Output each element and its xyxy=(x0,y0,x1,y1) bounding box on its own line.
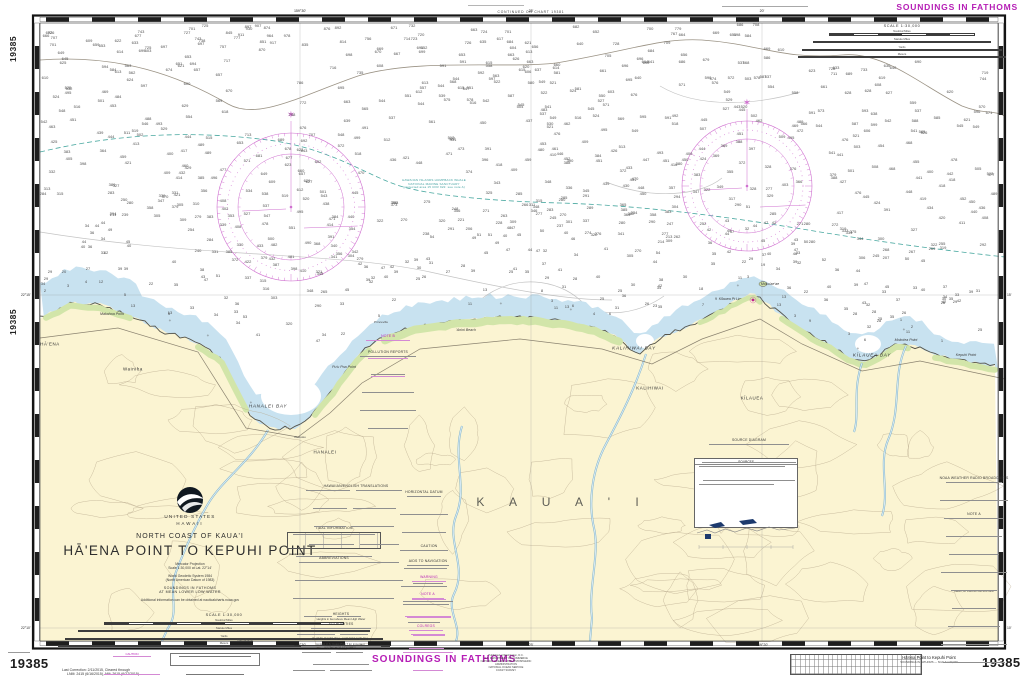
svg-text:692: 692 xyxy=(301,138,308,143)
svg-text:391: 391 xyxy=(884,207,891,212)
svg-text:496: 496 xyxy=(211,175,218,180)
svg-text:35: 35 xyxy=(890,314,895,319)
svg-text:700: 700 xyxy=(647,26,654,31)
svg-text:874: 874 xyxy=(264,25,271,30)
svg-text:44: 44 xyxy=(856,268,861,273)
svg-text:551: 551 xyxy=(405,93,412,98)
svg-text:542: 542 xyxy=(41,119,48,124)
svg-text:47: 47 xyxy=(511,225,516,230)
svg-text:36: 36 xyxy=(90,230,95,235)
svg-text:265: 265 xyxy=(321,289,328,294)
svg-text:291: 291 xyxy=(583,193,590,198)
svg-text:51: 51 xyxy=(477,232,482,237)
svg-text:442: 442 xyxy=(947,171,954,176)
svg-text:275: 275 xyxy=(424,199,431,204)
svg-text:213: 213 xyxy=(666,234,673,239)
svg-text:33: 33 xyxy=(190,305,195,310)
svg-text:403: 403 xyxy=(782,182,789,187)
svg-text:527: 527 xyxy=(244,211,251,216)
svg-text:343: 343 xyxy=(494,180,501,185)
svg-text:368: 368 xyxy=(314,241,321,246)
svg-text:676: 676 xyxy=(300,125,307,130)
svg-text:51: 51 xyxy=(488,232,493,237)
svg-text:271: 271 xyxy=(483,208,490,213)
svg-text:384: 384 xyxy=(595,153,602,158)
svg-text:653: 653 xyxy=(459,52,466,57)
svg-text:320: 320 xyxy=(439,218,446,223)
svg-text:23: 23 xyxy=(653,303,658,308)
svg-text:18: 18 xyxy=(699,286,704,291)
svg-text:292: 292 xyxy=(980,242,987,247)
svg-text:495: 495 xyxy=(601,127,608,132)
svg-text:622: 622 xyxy=(115,38,122,43)
svg-text:34: 34 xyxy=(41,281,46,286)
svg-text:283: 283 xyxy=(108,190,115,195)
svg-text:503: 503 xyxy=(854,144,861,149)
svg-text:639: 639 xyxy=(344,118,351,123)
svg-text:305: 305 xyxy=(154,213,161,218)
svg-text:32: 32 xyxy=(224,295,229,300)
svg-text:250: 250 xyxy=(121,197,128,202)
svg-text:468: 468 xyxy=(906,140,913,145)
svg-text:661: 661 xyxy=(600,68,607,73)
svg-text:37: 37 xyxy=(542,261,547,266)
svg-text:653: 653 xyxy=(185,54,192,59)
svg-text:571: 571 xyxy=(244,158,251,163)
svg-text:544: 544 xyxy=(418,101,425,106)
svg-text:459: 459 xyxy=(120,154,127,159)
svg-text:22: 22 xyxy=(341,331,346,336)
svg-text:651: 651 xyxy=(730,32,737,37)
svg-text:576: 576 xyxy=(712,80,719,85)
svg-text:322: 322 xyxy=(704,187,711,192)
svg-text:28: 28 xyxy=(853,311,858,316)
svg-text:383: 383 xyxy=(694,172,701,177)
svg-text:13: 13 xyxy=(131,303,136,308)
svg-text:36: 36 xyxy=(708,240,713,245)
svg-text:545: 545 xyxy=(588,106,595,111)
svg-text:50: 50 xyxy=(905,256,910,261)
kilauea-point-light xyxy=(752,299,755,302)
svg-text:426: 426 xyxy=(611,148,618,153)
svg-text:484: 484 xyxy=(115,94,122,99)
svg-text:30: 30 xyxy=(417,265,422,270)
svg-text:495: 495 xyxy=(788,135,795,140)
svg-text:420: 420 xyxy=(939,215,946,220)
svg-text:472: 472 xyxy=(797,128,804,133)
svg-text:623: 623 xyxy=(297,147,304,152)
svg-text:478: 478 xyxy=(951,157,958,162)
svg-text:713: 713 xyxy=(245,132,252,137)
svg-text:51: 51 xyxy=(216,273,221,278)
svg-text:303: 303 xyxy=(271,295,278,300)
svg-text:569: 569 xyxy=(618,116,625,121)
svg-text:42: 42 xyxy=(772,220,777,225)
svg-text:521: 521 xyxy=(853,133,860,138)
svg-text:708: 708 xyxy=(289,112,296,117)
svg-text:707: 707 xyxy=(309,132,316,137)
svg-text:315: 315 xyxy=(260,278,267,283)
svg-text:239: 239 xyxy=(122,212,129,217)
svg-text:280: 280 xyxy=(559,197,566,202)
svg-text:389: 389 xyxy=(721,143,728,148)
svg-text:476: 476 xyxy=(554,131,561,136)
svg-text:652: 652 xyxy=(315,159,322,164)
svg-text:669: 669 xyxy=(713,30,720,35)
svg-text:417: 417 xyxy=(837,210,844,215)
svg-text:663: 663 xyxy=(508,52,515,57)
svg-text:537: 537 xyxy=(738,60,745,65)
svg-text:310: 310 xyxy=(193,201,200,206)
svg-text:34: 34 xyxy=(85,223,90,228)
svg-text:657: 657 xyxy=(216,72,223,77)
svg-text:329: 329 xyxy=(767,193,774,198)
svg-text:411: 411 xyxy=(959,220,966,225)
svg-text:44: 44 xyxy=(725,231,730,236)
svg-text:451: 451 xyxy=(737,131,744,136)
svg-text:391: 391 xyxy=(485,146,492,151)
svg-text:38: 38 xyxy=(200,267,205,272)
svg-text:545: 545 xyxy=(957,123,964,128)
svg-text:679: 679 xyxy=(703,57,710,62)
svg-text:667: 667 xyxy=(394,51,401,56)
svg-text:440: 440 xyxy=(348,214,355,219)
svg-text:569: 569 xyxy=(216,98,223,103)
svg-text:448: 448 xyxy=(906,189,913,194)
svg-text:619: 619 xyxy=(879,75,886,80)
svg-text:669: 669 xyxy=(377,46,384,51)
svg-text:495: 495 xyxy=(297,209,304,214)
svg-text:421: 421 xyxy=(125,160,132,165)
svg-text:445: 445 xyxy=(352,190,359,195)
svg-text:409: 409 xyxy=(164,170,171,175)
svg-text:911: 911 xyxy=(238,32,245,37)
svg-text:516: 516 xyxy=(575,115,582,120)
svg-text:476: 476 xyxy=(842,137,849,142)
svg-text:36: 36 xyxy=(364,264,369,269)
svg-text:444: 444 xyxy=(699,146,706,151)
svg-text:591: 591 xyxy=(460,59,467,64)
svg-text:451: 451 xyxy=(596,158,603,163)
svg-text:22: 22 xyxy=(392,297,397,302)
svg-text:385: 385 xyxy=(621,207,628,212)
svg-text:565: 565 xyxy=(362,106,369,111)
svg-text:599: 599 xyxy=(871,122,878,127)
svg-text:32: 32 xyxy=(371,275,376,280)
svg-text:376: 376 xyxy=(790,166,797,171)
svg-text:587: 587 xyxy=(760,74,767,79)
svg-text:677: 677 xyxy=(286,155,293,160)
svg-text:635: 635 xyxy=(480,39,487,44)
svg-text:439: 439 xyxy=(603,181,610,186)
svg-text:669: 669 xyxy=(764,46,771,51)
svg-text:661: 661 xyxy=(821,84,828,89)
svg-text:725: 725 xyxy=(202,23,209,28)
svg-text:671: 671 xyxy=(391,25,398,30)
svg-text:49: 49 xyxy=(108,227,113,232)
svg-text:320: 320 xyxy=(286,321,293,326)
svg-text:34: 34 xyxy=(214,312,219,317)
svg-text:595: 595 xyxy=(640,114,647,119)
svg-text:418: 418 xyxy=(939,183,946,188)
svg-text:433: 433 xyxy=(257,243,264,248)
svg-text:756: 756 xyxy=(365,36,372,41)
svg-text:581: 581 xyxy=(575,86,582,91)
svg-text:372: 372 xyxy=(739,160,746,165)
svg-text:409: 409 xyxy=(511,167,518,172)
svg-text:413: 413 xyxy=(133,141,140,146)
svg-text:544: 544 xyxy=(438,83,445,88)
svg-text:267: 267 xyxy=(909,249,916,254)
svg-text:290: 290 xyxy=(735,202,742,207)
svg-text:25: 25 xyxy=(978,327,983,332)
svg-text:388: 388 xyxy=(736,139,743,144)
svg-text:671: 671 xyxy=(986,110,993,115)
svg-text:35: 35 xyxy=(174,282,179,287)
svg-text:851: 851 xyxy=(260,39,267,44)
svg-text:562: 562 xyxy=(129,70,136,75)
svg-text:40: 40 xyxy=(503,233,508,238)
svg-text:36: 36 xyxy=(824,297,829,302)
svg-text:270: 270 xyxy=(560,212,567,217)
svg-text:621: 621 xyxy=(525,40,532,45)
svg-text:52: 52 xyxy=(822,257,827,262)
svg-text:590: 590 xyxy=(705,75,712,80)
svg-text:571: 571 xyxy=(679,82,686,87)
svg-text:36: 36 xyxy=(235,301,240,306)
svg-text:385: 385 xyxy=(226,249,233,254)
svg-text:416: 416 xyxy=(671,162,678,167)
svg-text:697: 697 xyxy=(198,41,205,46)
svg-text:652: 652 xyxy=(593,29,600,34)
svg-text:35: 35 xyxy=(712,251,717,256)
svg-text:369: 369 xyxy=(713,153,720,158)
svg-text:438: 438 xyxy=(323,201,330,206)
svg-text:641: 641 xyxy=(648,59,655,64)
svg-text:501: 501 xyxy=(320,189,327,194)
svg-text:591: 591 xyxy=(665,115,672,120)
svg-text:689: 689 xyxy=(846,71,853,76)
svg-text:623: 623 xyxy=(809,68,816,73)
svg-text:521: 521 xyxy=(547,124,554,129)
svg-text:501: 501 xyxy=(98,98,105,103)
svg-text:240: 240 xyxy=(195,248,202,253)
svg-text:270: 270 xyxy=(635,248,642,253)
svg-text:549: 549 xyxy=(539,79,546,84)
svg-text:379: 379 xyxy=(261,255,268,260)
svg-text:39: 39 xyxy=(854,282,859,287)
svg-text:283: 283 xyxy=(547,207,554,212)
svg-text:40: 40 xyxy=(827,284,832,289)
svg-text:542: 542 xyxy=(483,98,490,103)
svg-text:559: 559 xyxy=(910,100,917,105)
svg-text:606: 606 xyxy=(864,128,871,133)
svg-text:624: 624 xyxy=(127,77,134,82)
svg-text:339: 339 xyxy=(220,222,227,227)
svg-text:547: 547 xyxy=(264,213,271,218)
svg-text:340: 340 xyxy=(331,243,338,248)
svg-text:502: 502 xyxy=(751,113,758,118)
svg-text:503: 503 xyxy=(987,171,994,176)
svg-text:441: 441 xyxy=(916,175,923,180)
svg-text:670: 670 xyxy=(226,88,233,93)
svg-text:47: 47 xyxy=(864,281,869,286)
svg-text:40: 40 xyxy=(767,251,772,256)
svg-text:289: 289 xyxy=(587,205,594,210)
svg-text:374: 374 xyxy=(466,169,473,174)
svg-text:537: 537 xyxy=(540,111,547,116)
svg-text:358: 358 xyxy=(147,205,154,210)
svg-text:521: 521 xyxy=(550,80,557,85)
svg-text:214: 214 xyxy=(658,239,665,244)
svg-text:263: 263 xyxy=(501,213,508,218)
mokuaeae-islet xyxy=(759,282,767,287)
svg-text:705: 705 xyxy=(605,53,612,58)
svg-text:596: 596 xyxy=(974,109,981,114)
svg-text:328: 328 xyxy=(750,186,757,191)
svg-text:29: 29 xyxy=(48,269,53,274)
svg-text:470: 470 xyxy=(358,170,365,175)
svg-text:653: 653 xyxy=(99,43,106,48)
svg-text:353: 353 xyxy=(228,213,235,218)
svg-text:34: 34 xyxy=(943,294,948,299)
svg-text:36: 36 xyxy=(88,244,93,249)
svg-text:354: 354 xyxy=(349,226,356,231)
svg-text:46: 46 xyxy=(793,251,798,256)
svg-text:709: 709 xyxy=(664,40,671,45)
svg-text:45: 45 xyxy=(761,238,766,243)
svg-text:529: 529 xyxy=(161,126,168,131)
svg-text:25: 25 xyxy=(600,296,605,301)
svg-text:845: 845 xyxy=(226,30,233,35)
svg-text:727: 727 xyxy=(184,30,191,35)
svg-text:450: 450 xyxy=(480,120,487,125)
svg-text:44: 44 xyxy=(95,223,100,228)
svg-text:45: 45 xyxy=(345,287,350,292)
svg-text:54: 54 xyxy=(430,234,435,239)
svg-text:568: 568 xyxy=(450,79,457,84)
svg-text:39: 39 xyxy=(414,257,419,262)
svg-text:400: 400 xyxy=(927,169,934,174)
svg-text:627: 627 xyxy=(306,179,313,184)
svg-text:28: 28 xyxy=(941,300,946,305)
svg-text:396: 396 xyxy=(482,157,489,162)
svg-text:563: 563 xyxy=(125,63,132,68)
svg-text:964: 964 xyxy=(267,33,274,38)
svg-text:448: 448 xyxy=(416,160,423,165)
svg-text:29: 29 xyxy=(749,256,754,261)
svg-text:476: 476 xyxy=(855,190,862,195)
svg-text:43: 43 xyxy=(201,274,206,279)
svg-text:660: 660 xyxy=(554,62,561,67)
svg-text:341: 341 xyxy=(331,254,338,259)
svg-text:331: 331 xyxy=(172,190,179,195)
svg-text:725: 725 xyxy=(145,45,152,50)
svg-text:690: 690 xyxy=(915,59,922,64)
svg-text:294: 294 xyxy=(674,194,681,199)
svg-text:32: 32 xyxy=(797,260,802,265)
svg-text:285: 285 xyxy=(770,211,777,216)
svg-text:39: 39 xyxy=(471,268,476,273)
svg-text:493: 493 xyxy=(657,150,664,155)
svg-text:34: 34 xyxy=(574,252,579,257)
svg-text:481: 481 xyxy=(288,254,295,259)
svg-text:33: 33 xyxy=(955,292,960,297)
svg-text:284: 284 xyxy=(40,191,47,196)
svg-text:42: 42 xyxy=(707,227,712,232)
svg-text:609: 609 xyxy=(269,179,276,184)
svg-text:664: 664 xyxy=(679,32,686,37)
svg-text:277: 277 xyxy=(766,186,773,191)
svg-text:44: 44 xyxy=(528,247,533,252)
svg-text:304: 304 xyxy=(672,204,679,209)
svg-text:503: 503 xyxy=(745,76,752,81)
svg-text:663: 663 xyxy=(344,99,351,104)
svg-text:522: 522 xyxy=(541,90,548,95)
svg-text:290: 290 xyxy=(315,303,322,308)
svg-text:316: 316 xyxy=(263,286,270,291)
svg-text:876: 876 xyxy=(324,26,331,31)
svg-text:410: 410 xyxy=(300,268,307,273)
svg-text:608: 608 xyxy=(875,82,882,87)
svg-text:245: 245 xyxy=(873,253,880,258)
svg-text:493: 493 xyxy=(156,121,163,126)
svg-text:46: 46 xyxy=(571,236,576,241)
svg-text:342: 342 xyxy=(352,249,359,254)
svg-text:34: 34 xyxy=(776,266,781,271)
svg-text:344: 344 xyxy=(857,236,864,241)
svg-text:43: 43 xyxy=(794,237,799,242)
svg-text:696: 696 xyxy=(622,63,629,68)
svg-text:524: 524 xyxy=(593,113,600,118)
svg-text:317: 317 xyxy=(729,196,736,201)
svg-text:13: 13 xyxy=(168,310,173,315)
svg-text:638: 638 xyxy=(871,111,878,116)
svg-text:33: 33 xyxy=(234,309,239,314)
svg-text:383: 383 xyxy=(207,214,214,219)
svg-text:652: 652 xyxy=(421,45,428,50)
svg-text:978: 978 xyxy=(284,33,291,38)
svg-text:653: 653 xyxy=(237,140,244,145)
svg-text:280: 280 xyxy=(809,239,816,244)
svg-text:33: 33 xyxy=(101,250,106,255)
svg-text:640: 640 xyxy=(577,41,584,46)
svg-text:649: 649 xyxy=(261,171,268,176)
svg-text:47: 47 xyxy=(536,248,541,253)
svg-text:389: 389 xyxy=(109,182,116,187)
svg-text:698: 698 xyxy=(346,52,353,57)
svg-text:614: 614 xyxy=(117,49,124,54)
svg-text:620: 620 xyxy=(947,89,954,94)
svg-text:42: 42 xyxy=(358,261,363,266)
svg-text:254: 254 xyxy=(188,227,195,232)
svg-text:409: 409 xyxy=(582,139,589,144)
svg-text:716: 716 xyxy=(330,65,337,70)
svg-text:441: 441 xyxy=(837,152,844,157)
svg-text:28: 28 xyxy=(573,276,578,281)
svg-text:31: 31 xyxy=(615,305,620,310)
svg-text:471: 471 xyxy=(446,151,453,156)
svg-text:54: 54 xyxy=(656,250,661,255)
svg-text:33: 33 xyxy=(882,289,887,294)
svg-text:735: 735 xyxy=(357,70,364,75)
svg-text:28: 28 xyxy=(461,263,466,268)
svg-text:237: 237 xyxy=(557,223,564,228)
svg-text:301: 301 xyxy=(566,219,573,224)
svg-text:597: 597 xyxy=(141,83,148,88)
svg-text:549: 549 xyxy=(632,128,639,133)
svg-text:549: 549 xyxy=(724,89,731,94)
